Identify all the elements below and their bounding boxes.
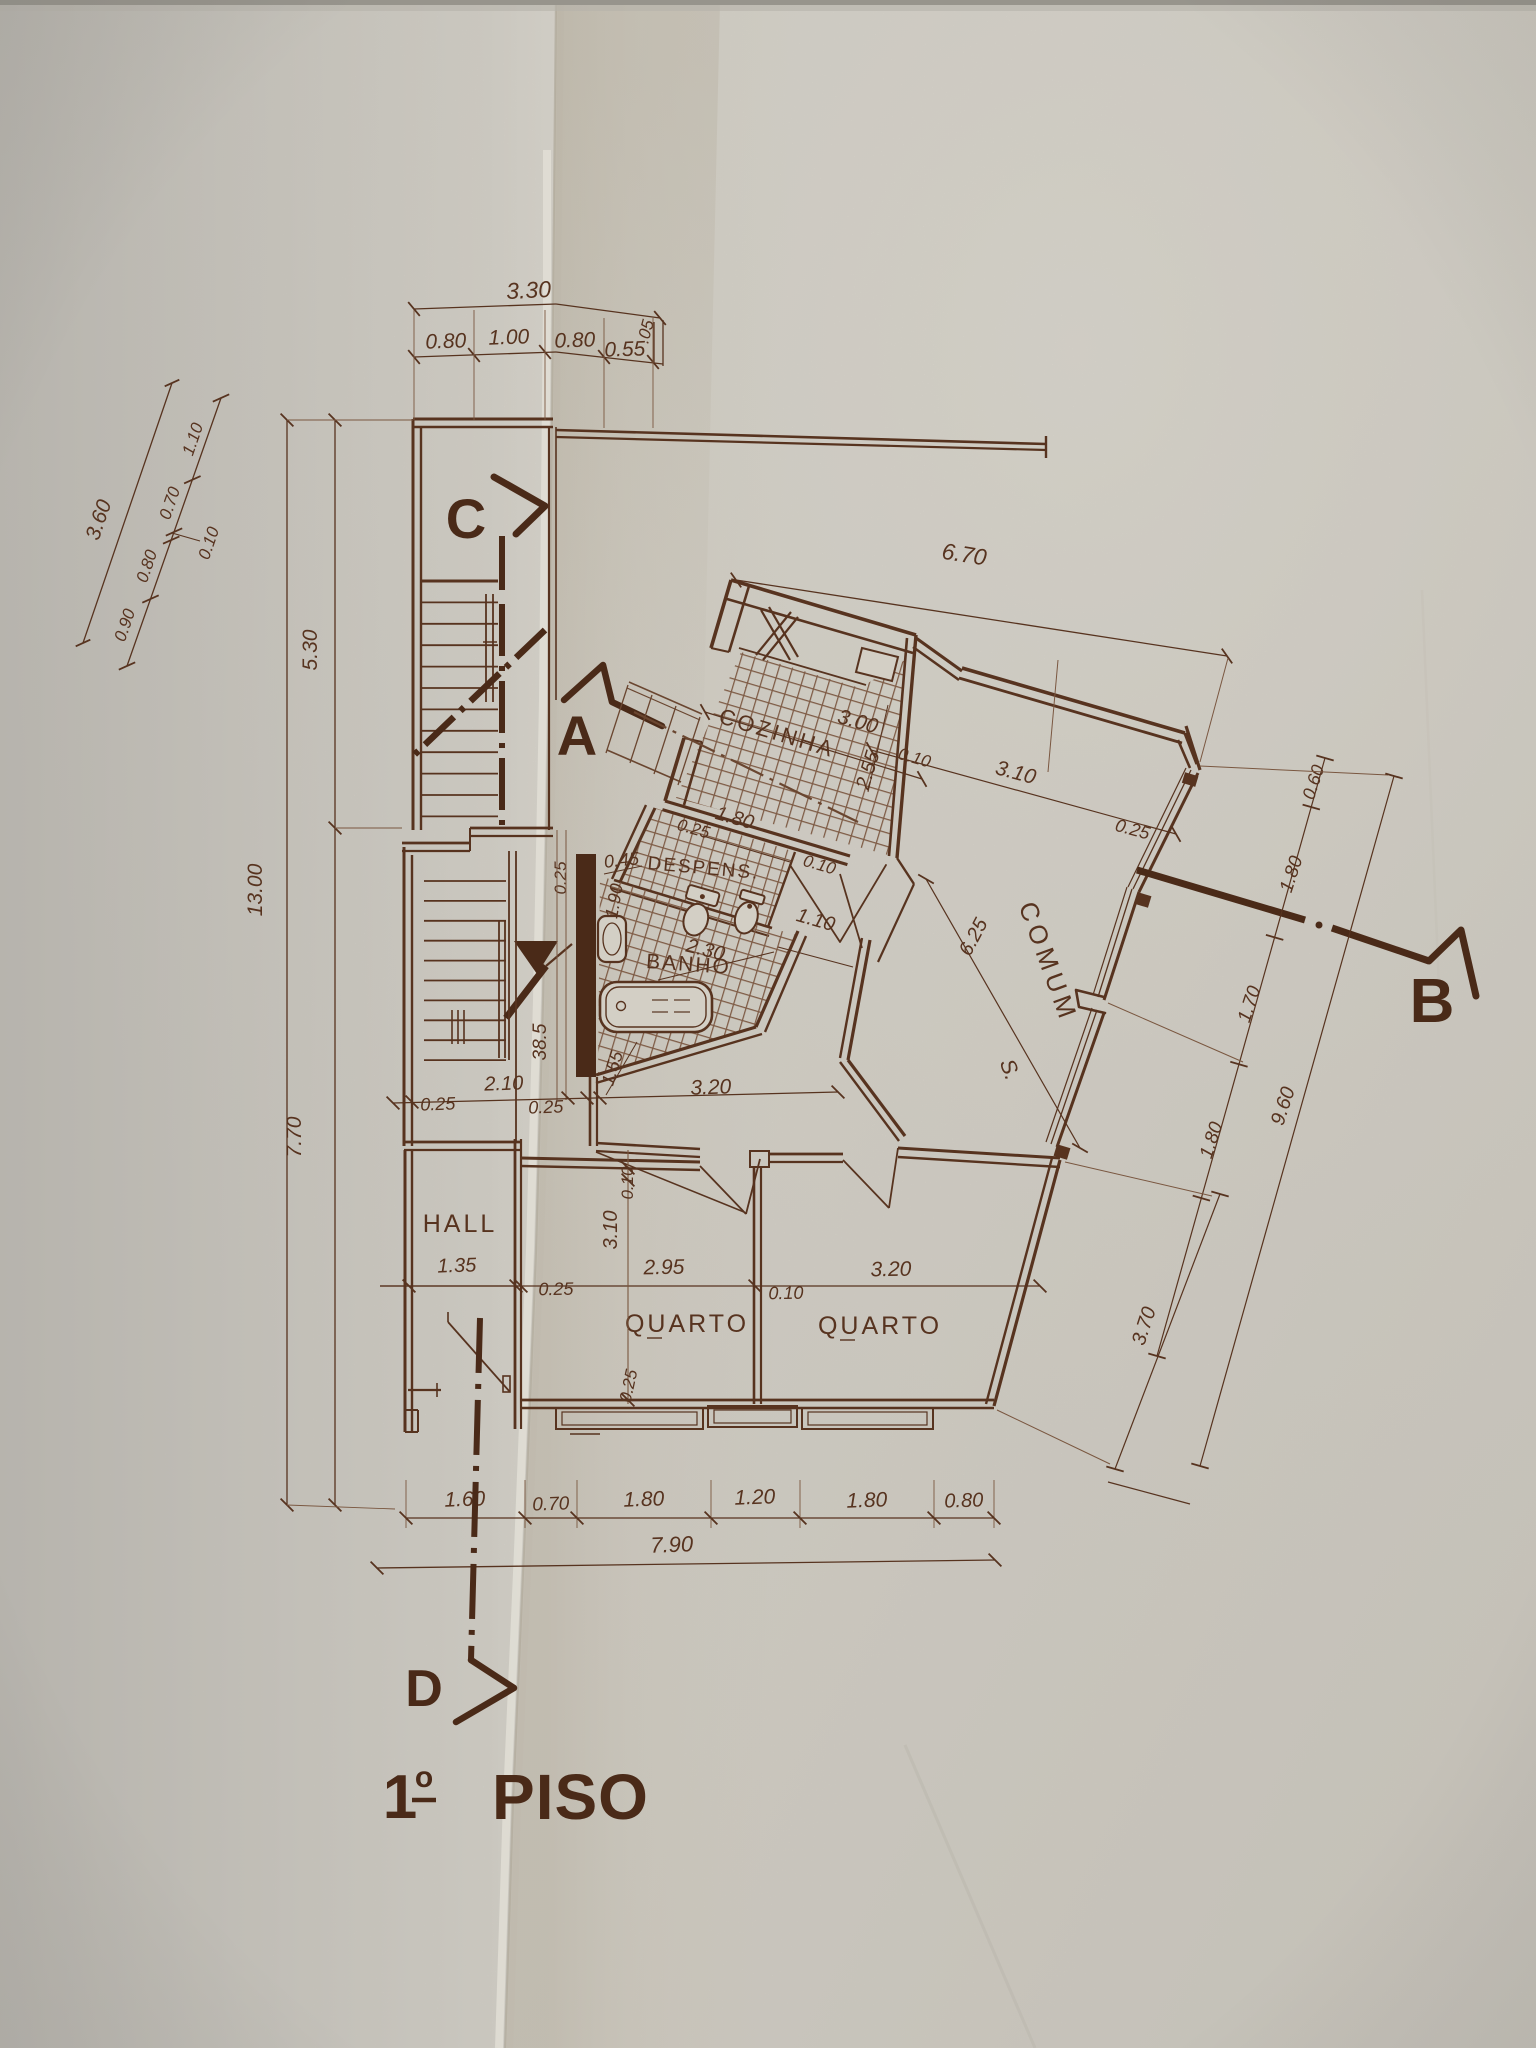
svg-text:7.90: 7.90 [650,1531,694,1558]
svg-text:1.60: 1.60 [444,1487,486,1511]
svg-text:A: A [557,704,597,767]
svg-text:QUARTO: QUARTO [625,1310,749,1338]
svg-text:C: C [446,487,486,550]
svg-text:1.20: 1.20 [734,1485,776,1509]
svg-text:5.30: 5.30 [299,629,322,670]
svg-text:1.80: 1.80 [623,1487,665,1511]
svg-text:1: 1 [383,1763,417,1832]
svg-text:0.25: 0.25 [538,1279,574,1300]
svg-text:QUARTO: QUARTO [818,1312,942,1340]
svg-text:2.95: 2.95 [642,1256,685,1280]
svg-text:0.80: 0.80 [554,328,596,352]
svg-text:2.10: 2.10 [483,1072,524,1095]
svg-text:0.70: 0.70 [532,1493,570,1515]
svg-text:13.00: 13.00 [244,863,267,916]
svg-text:B: B [1410,967,1455,1036]
svg-text:0.80: 0.80 [944,1489,984,1512]
svg-text:38.5: 38.5 [530,1023,551,1060]
svg-text:D: D [405,1660,443,1718]
svg-text:3.20: 3.20 [690,1075,732,1099]
svg-text:1.35: 1.35 [437,1254,478,1277]
svg-text:0.25: 0.25 [420,1093,457,1114]
svg-text:1.80: 1.80 [846,1488,888,1512]
svg-text:7.70: 7.70 [283,1116,306,1157]
svg-text:0.80: 0.80 [425,329,467,353]
svg-text:3.30: 3.30 [506,276,552,304]
svg-text:0.45: 0.45 [603,848,641,872]
svg-text:o: o [415,1761,433,1794]
svg-text:1.00: 1.00 [488,325,530,349]
svg-text:0.10: 0.10 [768,1283,803,1304]
svg-text:HALL: HALL [423,1210,498,1238]
svg-text:3.10: 3.10 [600,1211,622,1250]
svg-text:0.10: 0.10 [618,1166,637,1200]
svg-text:0.25: 0.25 [528,1096,565,1117]
svg-text:3.20: 3.20 [870,1258,912,1282]
svg-text:0.25: 0.25 [551,861,570,895]
svg-text:PISO: PISO [492,1761,649,1833]
